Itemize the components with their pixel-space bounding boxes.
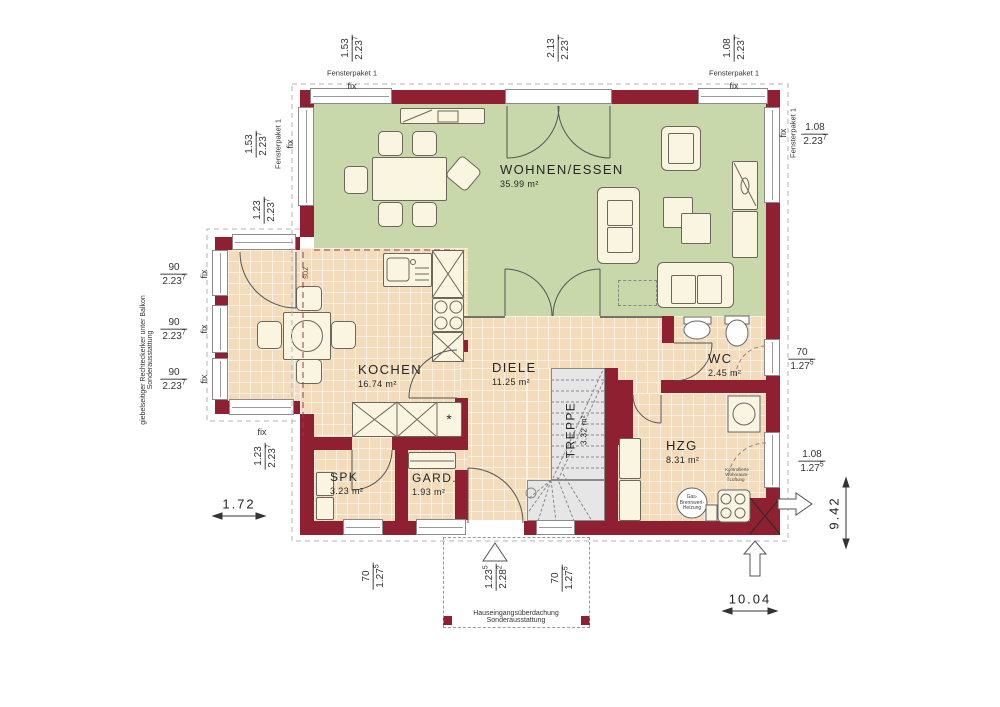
fensterpaket-label: Fensterpaket 1 bbox=[709, 69, 759, 78]
fix-label: fix bbox=[778, 129, 788, 138]
window-stairs bbox=[536, 519, 575, 535]
dim-top-1: 1.53 2.237 bbox=[339, 34, 366, 61]
gard-wardrobe bbox=[408, 452, 456, 469]
wall-wc-bottom bbox=[661, 380, 766, 393]
kitchen-sink-counter bbox=[383, 253, 432, 287]
terrace-door-opening bbox=[505, 89, 612, 104]
arrow-right-icon bbox=[778, 493, 812, 515]
fix-label: fix bbox=[199, 270, 209, 279]
dim-top-3: 1.08 2.237 bbox=[721, 34, 748, 61]
house-depth-dimension: 9.42 bbox=[827, 496, 842, 529]
room-label-hzg: HZG 8.31 m² bbox=[666, 438, 699, 465]
room-label-treppe: TREPPE 3.32 m² bbox=[564, 402, 589, 458]
fix-label: fix bbox=[199, 325, 209, 334]
sofa-cushion bbox=[697, 275, 722, 304]
chimney bbox=[750, 498, 780, 534]
sideboard-top bbox=[400, 108, 485, 124]
dim-left-2: 1.23 2.237 bbox=[251, 196, 278, 223]
dim-left-3: 1.23 2.237 bbox=[252, 442, 279, 469]
fix-label: fix bbox=[730, 81, 739, 91]
dim-right-1: 1.08 2.237 bbox=[801, 121, 828, 148]
kitchen-tall-cabinet bbox=[432, 332, 464, 362]
media-wall-unit bbox=[732, 161, 758, 210]
dim-left-1: 1.53 2.237 bbox=[243, 130, 270, 157]
window-spk bbox=[343, 519, 383, 535]
wall-left-lower bbox=[300, 414, 314, 535]
stairs-winder bbox=[527, 480, 605, 521]
spk-shelf bbox=[316, 497, 334, 520]
hall-corridor-floor bbox=[460, 368, 527, 521]
dim-bottom-1: 70 1.275 bbox=[360, 562, 387, 589]
dim-bottom-3: 70 1.275 bbox=[549, 564, 576, 591]
dining-table bbox=[372, 157, 447, 201]
erker-window-1 bbox=[212, 250, 228, 296]
dim-right-2: 70 1.275 bbox=[788, 346, 815, 373]
hzg-cabinet bbox=[619, 438, 641, 479]
erker-window-bottom bbox=[229, 399, 294, 415]
armchair-cushion bbox=[668, 133, 694, 164]
dining-chair bbox=[412, 131, 437, 156]
erker-depth-dimension: 1.72 bbox=[222, 497, 255, 512]
erker-note: giebelseitiger Rechteckerker unter Balko… bbox=[140, 295, 154, 425]
wall-hzg-block bbox=[618, 380, 633, 445]
dishwasher-symbol: * bbox=[446, 411, 451, 427]
room-label-wc: WC 2.45 m² bbox=[708, 351, 741, 378]
room-label-diele: DIELE 11.25 m² bbox=[492, 360, 537, 387]
window-hzg bbox=[764, 432, 780, 488]
sofa-cushion bbox=[671, 275, 696, 304]
dim-bottom-2: 1.235 2.282 bbox=[483, 563, 510, 590]
dim-erker-3: 90 2.237 bbox=[160, 366, 187, 393]
house-width-dimension: 10.04 bbox=[729, 592, 772, 607]
kitchen-chair bbox=[296, 359, 322, 384]
optional-furniture-outline bbox=[618, 280, 657, 306]
fensterpaket-label: Fensterpaket 1 bbox=[327, 69, 377, 78]
kitchen-tall-cabinet bbox=[432, 250, 464, 298]
fix-label: fix bbox=[348, 81, 357, 91]
sofa-cushion bbox=[607, 200, 633, 226]
dim-right-3: 1.08 1.275 bbox=[798, 448, 825, 475]
erker-window-2 bbox=[212, 305, 228, 353]
boiler-label: Gas- Brennwert- Heizung bbox=[680, 495, 704, 512]
floor-plan: WOHNEN/ESSEN 35.99 m² KOCHEN 16.74 m² DI… bbox=[0, 0, 1000, 707]
coffee-table bbox=[681, 213, 711, 244]
window-left-living bbox=[298, 107, 314, 206]
erker-window-3 bbox=[212, 358, 228, 400]
dim-erker-1: 90 2.237 bbox=[160, 261, 187, 288]
beam-label: SUZ bbox=[304, 267, 310, 279]
room-label-wohnen: WOHNEN/ESSEN 35.99 m² bbox=[500, 162, 624, 189]
dining-chair bbox=[412, 202, 437, 227]
room-label-kochen: KOCHEN 16.74 m² bbox=[358, 362, 422, 389]
dining-chair bbox=[378, 202, 403, 227]
dining-chair bbox=[344, 166, 368, 194]
dim-erker-2: 90 2.237 bbox=[160, 316, 187, 343]
window-wc bbox=[764, 339, 780, 376]
erker-window-top bbox=[232, 234, 296, 250]
ventilation-label: Kontrollierte Wohnraum- Lüftung bbox=[725, 468, 749, 483]
sofa-cushion bbox=[607, 227, 633, 253]
hzg-cabinet bbox=[619, 480, 641, 521]
kitchen-table-top bbox=[291, 320, 323, 352]
wall-kitchen-bottom-left bbox=[314, 437, 352, 450]
wall-spk-gard bbox=[395, 450, 408, 521]
window-gard bbox=[416, 519, 466, 535]
window-right-living bbox=[764, 107, 780, 203]
canopy-note: Hauseingangsüberdachung Sonderausstattun… bbox=[473, 610, 559, 624]
kitchen-chair bbox=[296, 286, 322, 311]
fix-label: fix bbox=[258, 427, 267, 437]
dining-chair bbox=[378, 131, 403, 156]
kitchen-stove bbox=[432, 298, 464, 332]
room-label-gard: GARD. 1.93 m² bbox=[412, 471, 457, 497]
room-label-spk: SPK 3.23 m² bbox=[330, 470, 363, 496]
fensterpaket-label: Fensterpaket 1 bbox=[789, 108, 798, 158]
fix-label: fix bbox=[199, 375, 209, 384]
media-wall-unit bbox=[732, 211, 758, 258]
wall-kitchen-bottom-right bbox=[392, 437, 468, 450]
kitchen-chair bbox=[331, 321, 356, 349]
kitchen-chair bbox=[257, 321, 282, 349]
arrow-up-icon bbox=[744, 541, 766, 576]
wall-stairs-right bbox=[605, 368, 618, 521]
entry-door-opening bbox=[466, 520, 524, 535]
dim-top-2: 2.13 2.237 bbox=[545, 34, 572, 61]
wall-wc-left-stub bbox=[662, 316, 674, 343]
fix-label: fix bbox=[285, 140, 295, 149]
fensterpaket-label: Fensterpaket 1 bbox=[274, 119, 283, 169]
